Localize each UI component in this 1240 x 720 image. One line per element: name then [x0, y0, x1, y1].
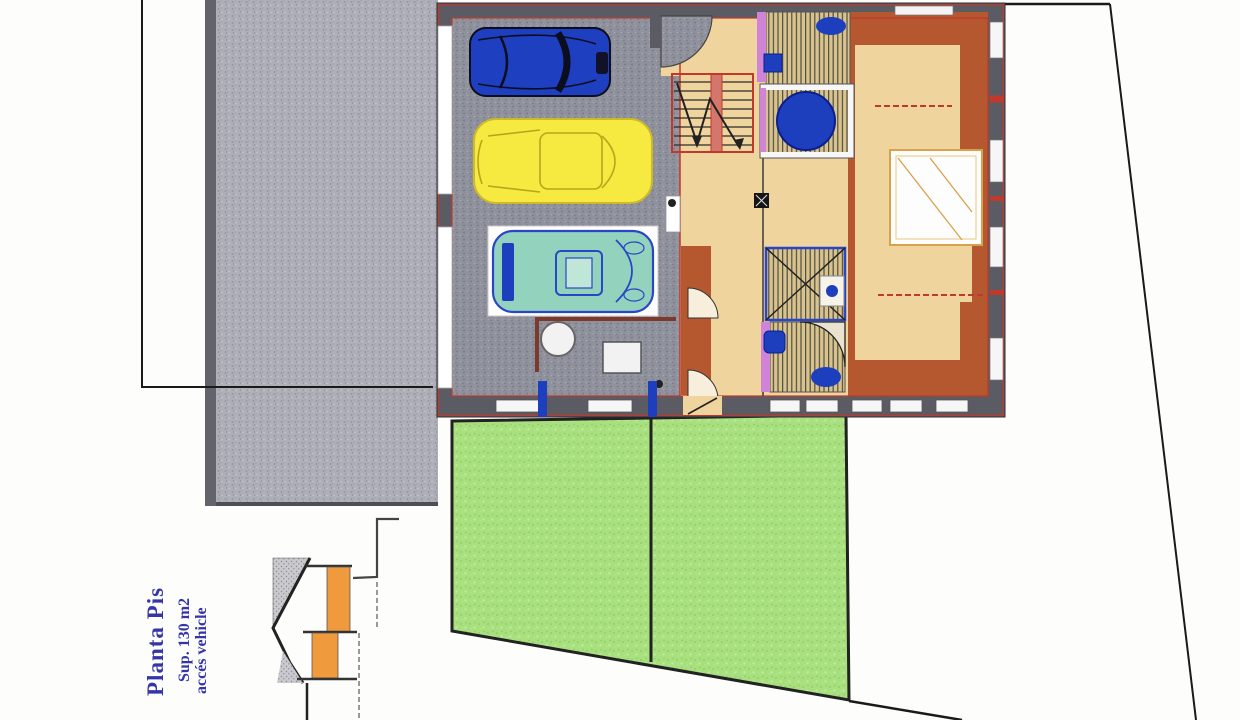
- window-right-3: [990, 227, 1003, 267]
- bathroom-lower: [766, 248, 845, 320]
- window-bottom-2: [588, 400, 632, 412]
- plot-boundary-right-diagonal: [1110, 4, 1196, 720]
- driveway: [216, 0, 438, 506]
- bathroom-top: [757, 12, 850, 84]
- window-bottom-3: [770, 400, 800, 412]
- blue-car: [470, 28, 610, 96]
- plan-access-label: accés vehicle: [193, 572, 211, 694]
- post-1: [538, 381, 547, 417]
- garage-door-2: [438, 227, 452, 388]
- window-right-4: [990, 338, 1003, 380]
- yellow-car: [474, 119, 652, 203]
- section-wall-lower: [312, 633, 338, 678]
- window-bottom-6: [890, 400, 922, 412]
- section-wall-upper: [327, 567, 350, 632]
- section-kerb-profile: [353, 519, 399, 578]
- jacuzzi-tub: [777, 92, 835, 150]
- garage-door-1: [438, 26, 452, 194]
- post-2: [648, 381, 657, 417]
- plan-surface-label: Sup. 130 m2: [176, 574, 194, 682]
- window-bottom-4: [806, 400, 838, 412]
- teal-car: [488, 226, 658, 316]
- sink-top: [764, 54, 782, 72]
- plan-title: Planta Pis: [143, 558, 169, 696]
- toilet-top: [816, 17, 846, 35]
- shower-room: [761, 322, 845, 392]
- floor-plan-page: Planta Pis Sup. 130 m2 accés vehicle: [0, 0, 1240, 720]
- jacuzzi-room: [760, 84, 854, 158]
- door-knob-symbol-1: [668, 199, 676, 207]
- closet: [890, 150, 982, 245]
- window-bottom-5: [852, 400, 882, 412]
- utility-box: [603, 342, 641, 373]
- plot-boundary-bottom: [849, 701, 962, 720]
- window-bottom-7: [936, 400, 968, 412]
- window-top: [895, 6, 953, 15]
- hall-wall-stub: [650, 16, 661, 48]
- fixture-lower: [826, 285, 838, 297]
- sink-lower: [764, 331, 785, 353]
- boiler: [541, 322, 575, 356]
- toilet-lower: [811, 367, 841, 387]
- window-right-2: [990, 140, 1003, 182]
- stair-center-stringer: [711, 74, 722, 152]
- window-right-1: [990, 22, 1003, 58]
- driveway-edge-band: [205, 0, 216, 506]
- building: [437, 3, 1005, 417]
- section-detail: [273, 519, 399, 720]
